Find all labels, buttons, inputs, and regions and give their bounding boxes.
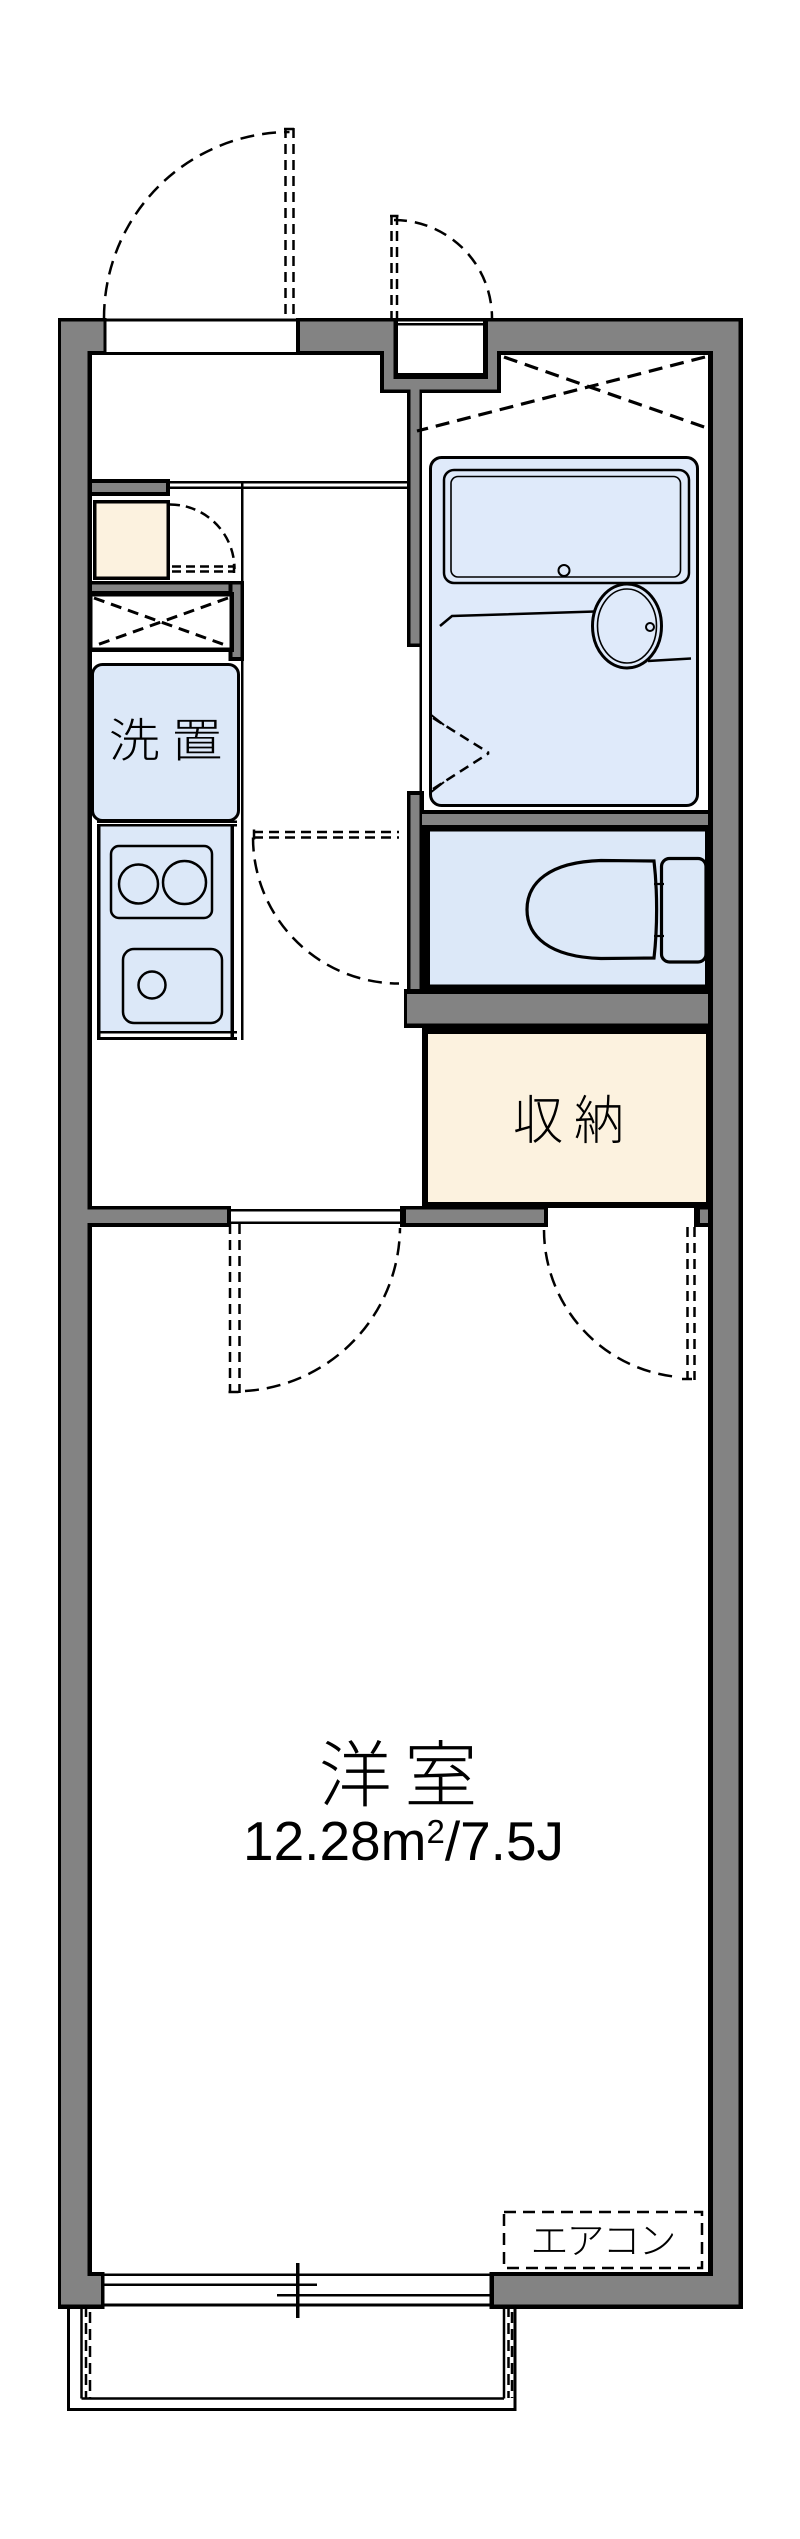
svg-text:12.28m2/7.5J: 12.28m2/7.5J bbox=[243, 1810, 564, 1872]
